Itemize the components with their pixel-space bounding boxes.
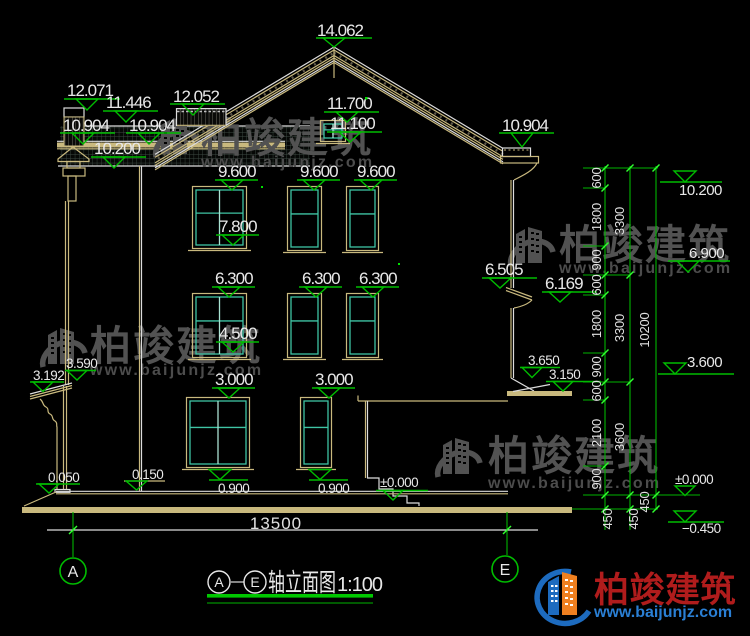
svg-text:6.300: 6.300	[215, 269, 253, 288]
svg-text:6.300: 6.300	[359, 269, 397, 288]
svg-text:3300: 3300	[612, 207, 627, 235]
svg-text:0.900: 0.900	[218, 481, 249, 496]
svg-text:−0.450: −0.450	[682, 521, 721, 536]
svg-text:450: 450	[600, 508, 615, 529]
svg-text:3.650: 3.650	[528, 353, 559, 368]
svg-text:www.baijunjz.com: www.baijunjz.com	[487, 475, 661, 492]
svg-text:900: 900	[589, 249, 604, 270]
svg-text:6.505: 6.505	[485, 260, 523, 279]
svg-text:11.100: 11.100	[330, 114, 375, 133]
svg-text:1:100: 1:100	[337, 574, 383, 596]
svg-text:2100: 2100	[589, 419, 604, 447]
svg-text:7.800: 7.800	[219, 217, 257, 236]
svg-text:3600: 3600	[612, 423, 627, 451]
svg-text:0.900: 0.900	[318, 481, 349, 496]
svg-text:3.600: 3.600	[687, 354, 722, 371]
svg-text:11.446: 11.446	[106, 93, 151, 112]
svg-text:9.600: 9.600	[357, 162, 395, 181]
svg-text:1800: 1800	[589, 310, 604, 338]
svg-text:6.300: 6.300	[302, 269, 340, 288]
svg-text:600: 600	[589, 167, 604, 188]
svg-text:10200: 10200	[637, 312, 652, 347]
svg-text:450: 450	[637, 491, 652, 512]
svg-text:A: A	[214, 574, 224, 590]
svg-text:10.904: 10.904	[502, 116, 549, 135]
svg-text:10.200: 10.200	[679, 182, 722, 199]
svg-text:6.900: 6.900	[689, 245, 724, 262]
svg-text:E: E	[250, 574, 259, 590]
svg-text:12.052: 12.052	[173, 87, 220, 106]
svg-text:10.200: 10.200	[94, 139, 141, 158]
svg-text:13500: 13500	[250, 514, 302, 533]
svg-text:www.baijunjz.com: www.baijunjz.com	[593, 604, 732, 621]
svg-text:600: 600	[589, 380, 604, 401]
svg-text:3300: 3300	[612, 314, 627, 342]
svg-text:11.700: 11.700	[327, 94, 372, 113]
svg-text:3.192: 3.192	[33, 368, 64, 383]
svg-text:±0.000: ±0.000	[380, 475, 418, 490]
svg-text:0.150: 0.150	[132, 467, 163, 482]
svg-text:14.062: 14.062	[317, 21, 364, 40]
svg-text:10.904: 10.904	[63, 116, 110, 135]
svg-text:±0.000: ±0.000	[675, 472, 713, 487]
svg-text:900: 900	[589, 356, 604, 377]
svg-text:9.600: 9.600	[218, 162, 256, 181]
svg-text:10.904: 10.904	[129, 116, 176, 135]
svg-text:3.000: 3.000	[315, 370, 353, 389]
svg-text:E: E	[500, 562, 511, 579]
svg-text:1800: 1800	[589, 203, 604, 231]
svg-text:600: 600	[589, 274, 604, 295]
svg-text:0.050: 0.050	[48, 470, 79, 485]
svg-text:柏竣建筑: 柏竣建筑	[488, 433, 660, 479]
svg-text:9.600: 9.600	[300, 162, 338, 181]
svg-text:A: A	[68, 564, 79, 581]
svg-text:3.150: 3.150	[549, 367, 580, 382]
svg-text:4.500: 4.500	[219, 324, 257, 343]
svg-text:6.169: 6.169	[545, 274, 583, 293]
svg-text:轴立面图: 轴立面图	[268, 569, 336, 597]
svg-text:900: 900	[589, 468, 604, 489]
svg-text:3.590: 3.590	[66, 356, 97, 371]
svg-text:3.000: 3.000	[215, 370, 253, 389]
